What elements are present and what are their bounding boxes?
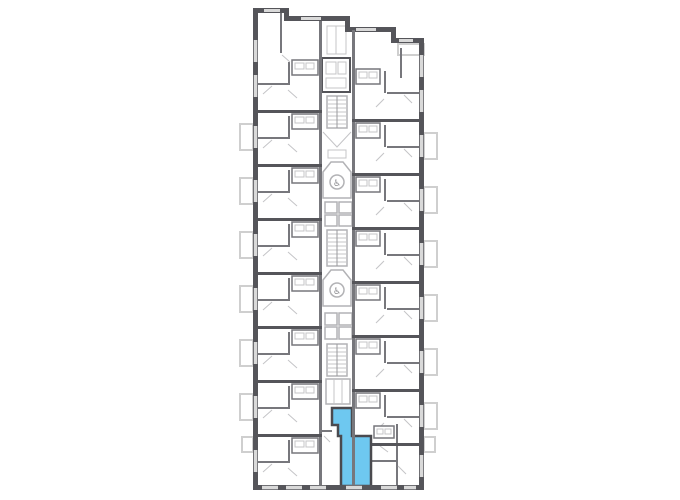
party-wall [253,326,322,329]
accessibility-icon: ♿ [333,179,341,189]
party-wall [253,110,322,113]
party-wall [352,389,424,392]
party-wall [253,434,322,437]
party-wall [352,173,424,176]
party-wall [253,380,322,383]
partition-wall [400,48,402,78]
floor-plan: ♿ ♿ [0,0,680,500]
party-wall [372,443,424,446]
party-wall [253,218,322,221]
core: ♿ ♿ [322,26,352,404]
corridor-wall [319,21,322,485]
party-wall [352,281,424,284]
floor-plan-canvas: ♿ ♿ [0,0,680,500]
party-wall [352,119,424,122]
accessibility-icon: ♿ [333,287,341,297]
partition-wall [280,13,282,53]
exterior-wall-bottom [253,485,424,490]
party-wall [253,164,322,167]
party-wall [253,272,322,275]
corridor-wall [352,30,355,485]
party-wall [352,227,424,230]
party-wall [352,335,424,338]
